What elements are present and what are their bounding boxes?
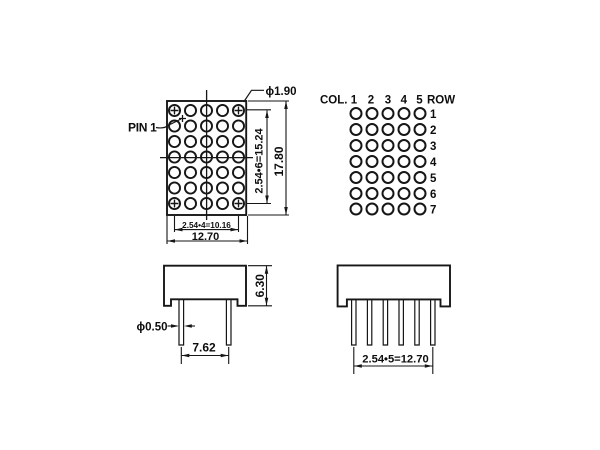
svg-text:PIN 1: PIN 1 [128, 121, 157, 135]
svg-text:5: 5 [416, 95, 423, 107]
svg-text:5: 5 [430, 173, 437, 185]
svg-text:2: 2 [368, 95, 374, 107]
svg-text:3: 3 [430, 141, 436, 153]
svg-text:12.70: 12.70 [192, 231, 220, 243]
svg-text:7.62: 7.62 [192, 341, 216, 355]
svg-text:6.30: 6.30 [253, 274, 267, 298]
svg-text:4: 4 [430, 157, 437, 169]
svg-text:ϕ0.50: ϕ0.50 [137, 322, 168, 334]
svg-text:2.54•5=12.70: 2.54•5=12.70 [362, 354, 428, 366]
svg-text:1: 1 [351, 95, 358, 107]
svg-text:2.54•6=15.24: 2.54•6=15.24 [254, 127, 266, 193]
svg-text:COL.: COL. [320, 95, 347, 107]
svg-text:4: 4 [401, 95, 408, 107]
svg-text:6: 6 [430, 189, 436, 201]
svg-text:17.80: 17.80 [272, 146, 286, 176]
svg-text:ϕ1.90: ϕ1.90 [266, 86, 297, 98]
svg-text:2.54•4=10.16: 2.54•4=10.16 [182, 221, 231, 230]
svg-text:7: 7 [430, 205, 436, 217]
svg-text:2: 2 [430, 125, 436, 137]
svg-text:ROW: ROW [427, 95, 455, 107]
svg-text:1: 1 [430, 109, 437, 121]
svg-text:3: 3 [385, 95, 391, 107]
